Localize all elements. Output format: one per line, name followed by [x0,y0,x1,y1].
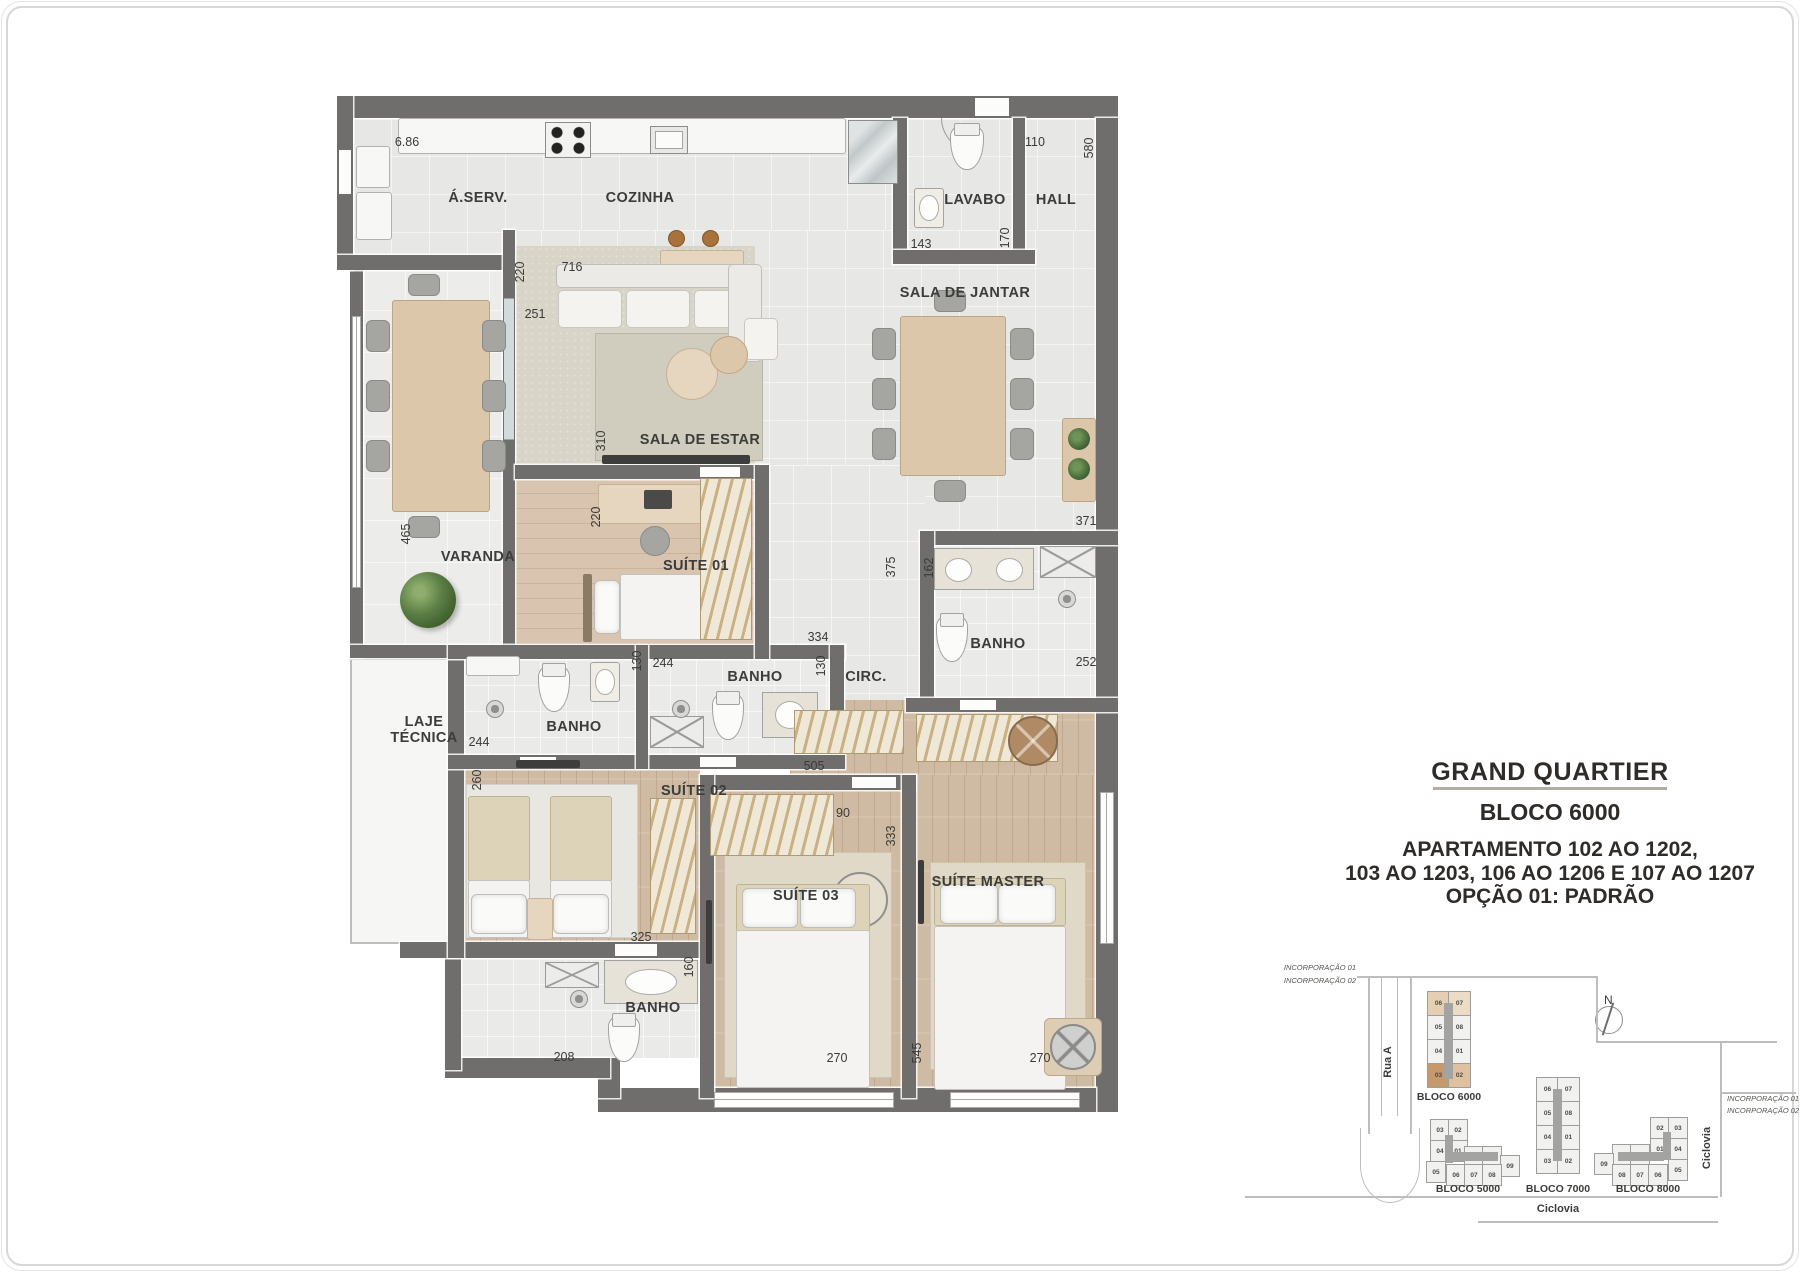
bloco-5000-core [1452,1152,1498,1161]
bloco-7000-core [1553,1089,1562,1161]
site-boundary [1596,1041,1777,1043]
ciclovia-road-edge [1245,1196,1718,1198]
bloco-6000-core [1444,1003,1453,1079]
bloco-8000-unit-09: 09 [1594,1153,1614,1175]
rua-a-road-edge [1410,976,1412,1134]
site-boundary [1720,1041,1722,1197]
incorporation-label-left: INCORPORAÇÃO 02 [1272,976,1356,985]
rua-a-road-edge [1368,976,1370,1134]
street-rua-a-label: Rua A [1382,1046,1394,1077]
bloco-6000-label: BLOCO 6000 [1417,1091,1481,1103]
site-boundary [1357,976,1597,978]
rua-a-lane-line [1381,976,1382,1116]
rua-a-cul-de-sac [1360,1128,1420,1203]
street-ciclovia-right-label: Ciclovia [1701,1127,1713,1169]
bloco-5000-unit-09: 09 [1500,1155,1520,1177]
incorporation-label-right: INCORPORAÇÃO 02 [1727,1106,1799,1115]
bloco-8000-unit-03: 03 [1668,1117,1688,1139]
bloco-8000-core [1663,1132,1671,1160]
bloco-5000-label: BLOCO 5000 [1436,1183,1500,1195]
bloco-7000-label: BLOCO 7000 [1526,1183,1590,1195]
ciclovia-road-edge [1478,1221,1718,1223]
bloco-8000-unit-05: 05 [1668,1159,1688,1181]
rua-a-lane-line [1397,976,1398,1116]
bloco-8000-core [1618,1152,1664,1161]
incorporation-label-left: INCORPORAÇÃO 01 [1272,963,1356,972]
street-ciclovia-bottom-label: Ciclovia [1537,1203,1579,1215]
floor-plan-page: { "title_block": { "project": "GRAND QUA… [0,0,1800,1272]
incorporation-label-right: INCORPORAÇÃO 01 [1727,1094,1799,1103]
site-boundary [1596,976,1598,1042]
site-map: Rua A Ciclovia Ciclovia N 06070508040103… [0,0,1800,1272]
bloco-8000-unit-04: 04 [1668,1138,1688,1160]
bloco-8000-label: BLOCO 8000 [1616,1183,1680,1195]
bloco-5000-unit-05: 05 [1426,1161,1446,1183]
